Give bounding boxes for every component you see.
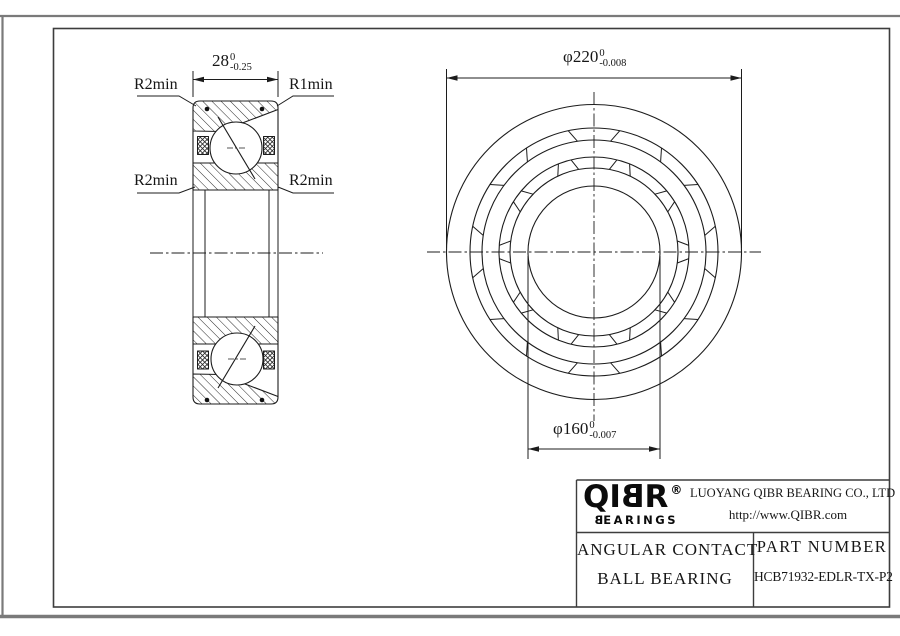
dim-width-text: 28 0 -0.25: [212, 52, 252, 72]
dia-symbol: φ: [563, 48, 573, 66]
dim-outer-dia-text: φ 220 0 -0.008: [563, 48, 626, 68]
product-name-line1: ANGULAR CONTACT: [577, 541, 753, 559]
dim-outer-dia-tolerance: 0 -0.008: [599, 49, 626, 68]
product-name-line2: BALL BEARING: [577, 570, 753, 588]
sheet-frame: [0, 16, 900, 617]
logo-subtitle: BEARINGS: [592, 514, 678, 526]
front-view: [427, 92, 761, 421]
company-logo: QIBR®: [583, 482, 682, 513]
dia-symbol: φ: [553, 420, 563, 438]
dim-width-tolerance: 0 -0.25: [230, 53, 252, 72]
dim-width-value: 28: [212, 52, 229, 70]
section-view: [150, 101, 323, 404]
part-number-label: PART NUMBER: [754, 538, 890, 555]
label-r1min-top-right: R1min: [289, 77, 333, 94]
company-website: http://www.QIBR.com: [690, 508, 886, 522]
label-r2min-top-left: R2min: [134, 77, 178, 94]
dim-bore-dia-tolerance: 0 -0.007: [589, 421, 616, 440]
drawing-sheet: 28 0 -0.25 R2min R1min R2min R2min φ 220…: [0, 0, 900, 636]
part-number-value: HCB71932-EDLR-TX-P2: [754, 570, 890, 584]
registered-trademark-icon: ®: [670, 483, 682, 497]
label-r2min-mid-left: R2min: [134, 173, 178, 190]
company-name: LUOYANG QIBR BEARING CO., LTD: [690, 487, 886, 500]
label-r2min-mid-right: R2min: [289, 173, 333, 190]
section-width-dimension: [193, 71, 278, 97]
dim-bore-dia-text: φ 160 0 -0.007: [553, 420, 616, 440]
